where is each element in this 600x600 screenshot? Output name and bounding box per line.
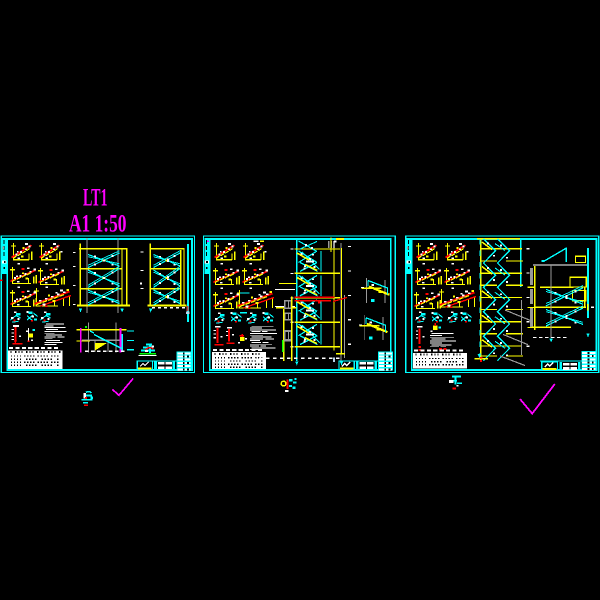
svg-text:A1 1:50: A1 1:50 — [69, 209, 127, 238]
svg-text:LT1: LT1 — [83, 183, 108, 212]
